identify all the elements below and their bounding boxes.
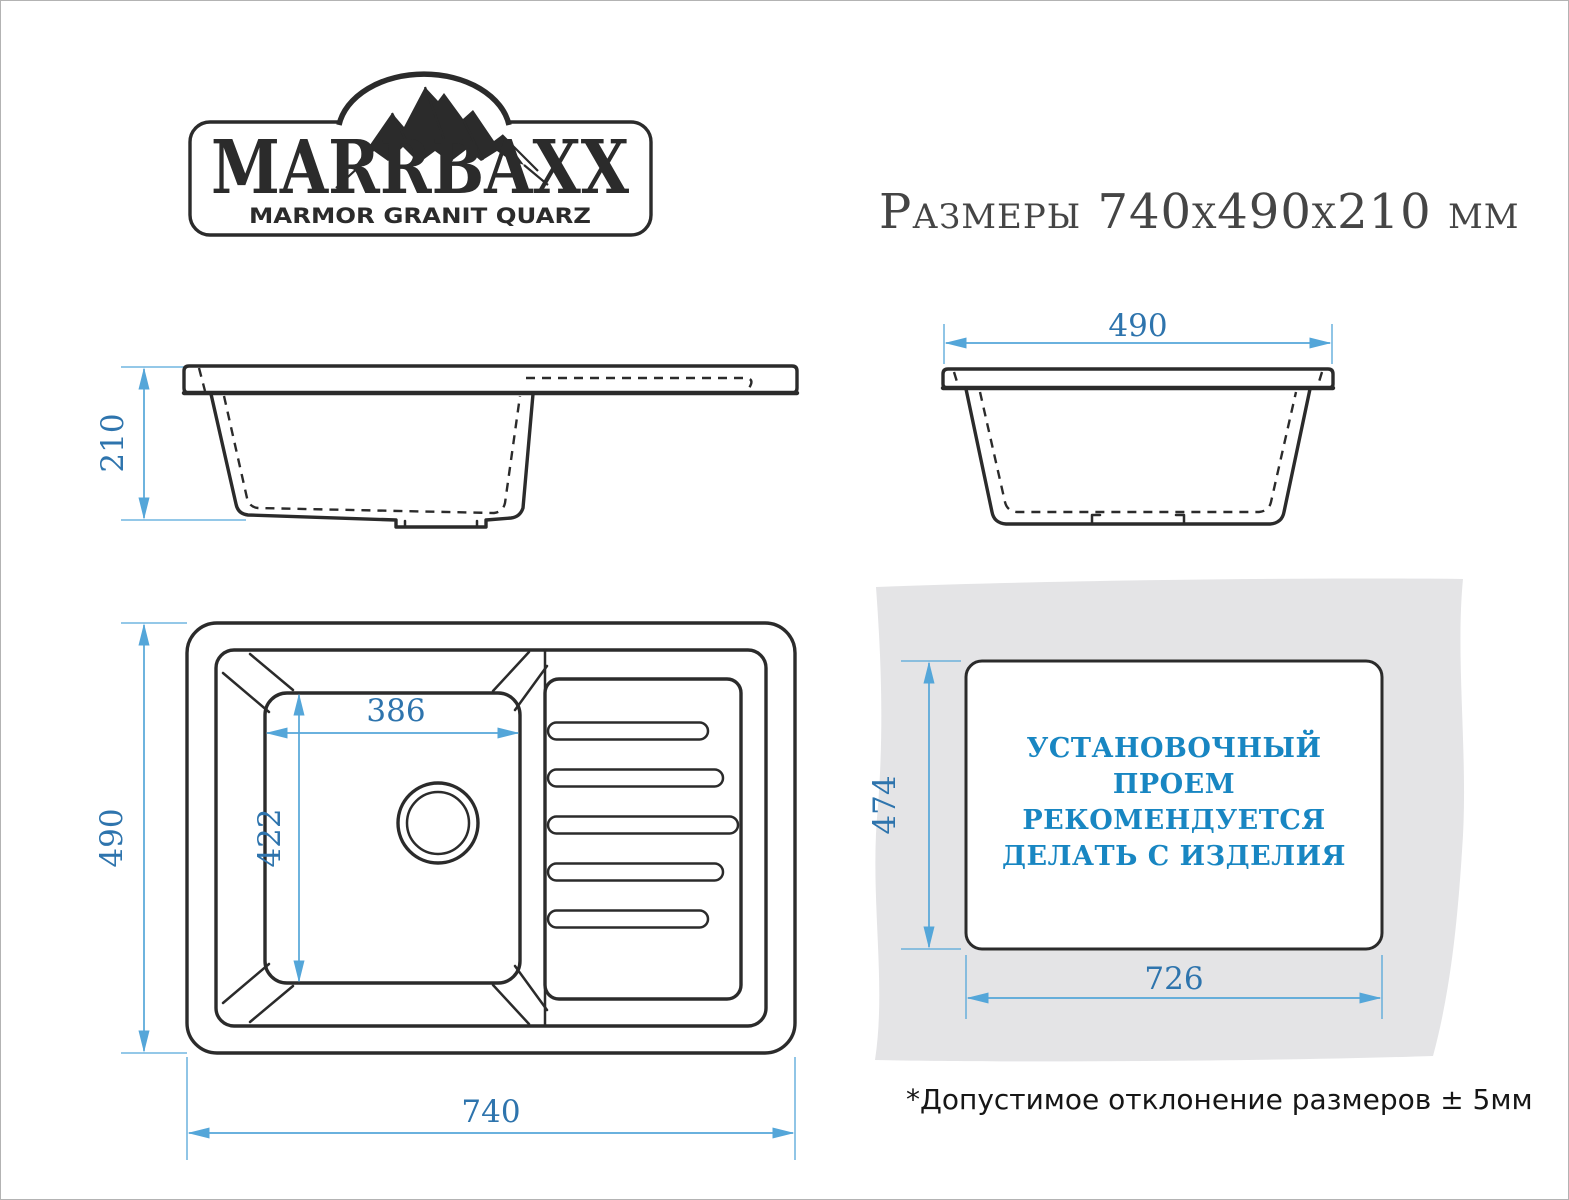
page-title: Размеры 740х490х210 мм bbox=[879, 184, 1520, 240]
sink-rim-profile bbox=[943, 369, 1333, 388]
installation-note: УСТАНОВОЧНЫЙ ПРОЕМ РЕКОМЕНДУЕТСЯ ДЕЛАТЬ … bbox=[966, 731, 1382, 875]
dim-height-label: 210 bbox=[96, 413, 131, 472]
bowl-bottom-outline bbox=[265, 693, 520, 983]
dim-depth-label: 490 bbox=[96, 808, 130, 867]
brand-logo: MARRBAXX MARMOR GRANIT QUARZ bbox=[186, 53, 656, 251]
dim-bowl-depth-label: 422 bbox=[252, 808, 288, 867]
dim-bowl-width-label: 386 bbox=[366, 693, 425, 729]
dim-length-label: 740 bbox=[461, 1094, 520, 1130]
dim-width-label: 490 bbox=[1108, 308, 1167, 344]
spec-sheet: MARRBAXX MARMOR GRANIT QUARZ Размеры 740… bbox=[0, 0, 1569, 1200]
brand-name: MARRBAXX bbox=[211, 125, 629, 211]
top-view-drawing: 490 386 422 bbox=[96, 611, 816, 1171]
installation-note-line: РЕКОМЕНДУЕТСЯ bbox=[966, 803, 1382, 839]
installation-note-line: ДЕЛАТЬ С ИЗДЕЛИЯ bbox=[966, 839, 1382, 875]
dim-cutout-width-label: 726 bbox=[1144, 961, 1203, 997]
sink-rim-profile bbox=[184, 366, 797, 393]
bowl-profile bbox=[966, 389, 1310, 524]
dim-cutout-height-label: 474 bbox=[867, 775, 903, 834]
installation-note-line: ПРОЕМ bbox=[966, 767, 1382, 803]
tolerance-footnote: *Допустимое отклонение размеров ± 5мм bbox=[906, 1083, 1533, 1116]
hidden-bowl-edge bbox=[224, 396, 520, 513]
hidden-bowl-edge bbox=[980, 392, 1296, 512]
front-view-drawing: 490 bbox=[886, 296, 1446, 546]
bowl-profile bbox=[211, 394, 533, 527]
side-view-drawing: 210 bbox=[96, 346, 816, 546]
brand-tagline: MARMOR GRANIT QUARZ bbox=[249, 204, 591, 228]
installation-note-line: УСТАНОВОЧНЫЙ bbox=[966, 731, 1382, 767]
